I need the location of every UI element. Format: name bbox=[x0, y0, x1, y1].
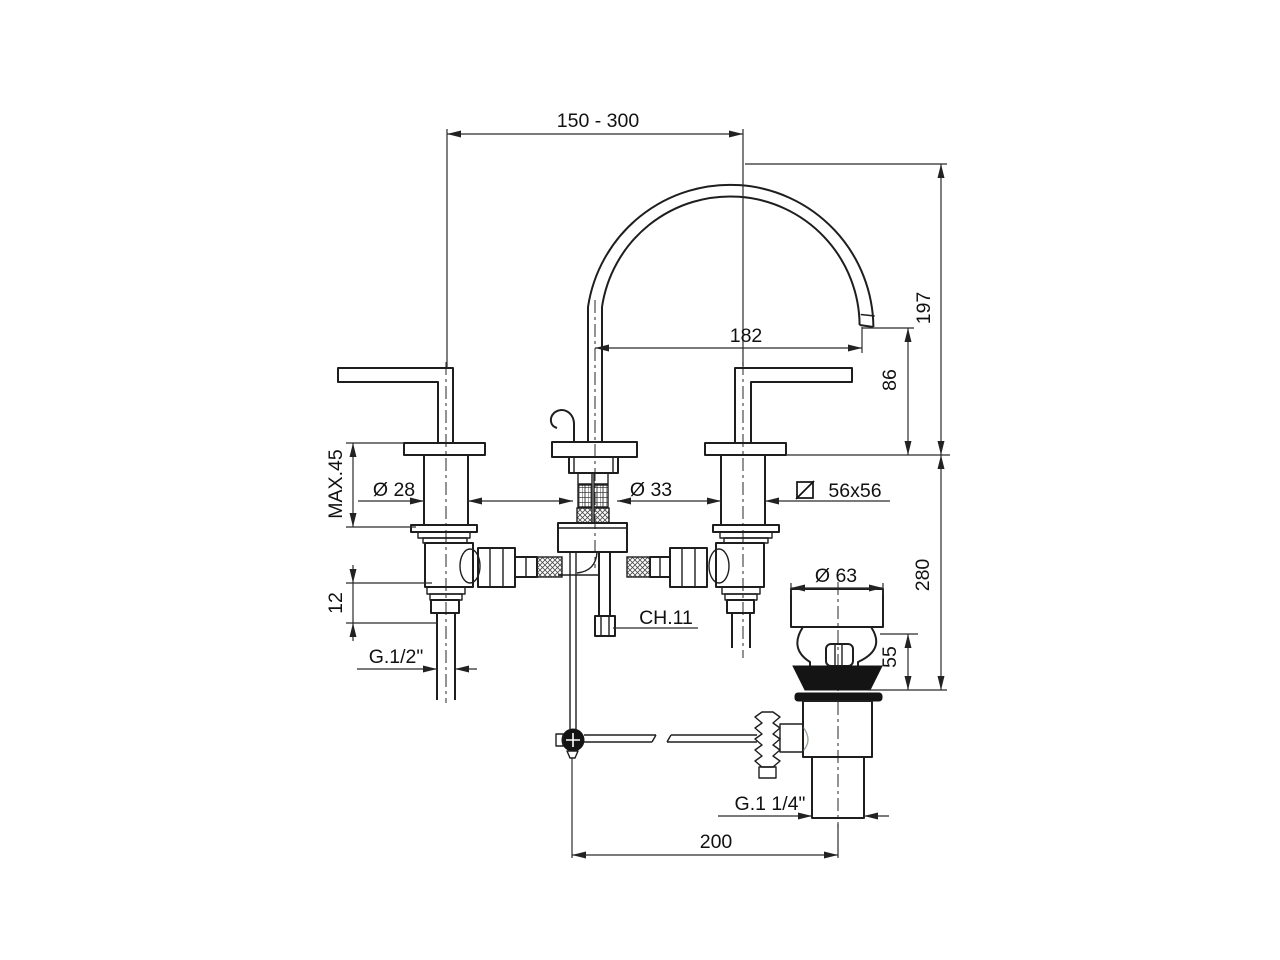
dim-outlet-height-label: 86 bbox=[879, 369, 901, 391]
dim-outlet-height: 86 bbox=[862, 328, 914, 455]
label-drain-thread: G.1 1/4" bbox=[735, 793, 806, 815]
cartridge-thread-left bbox=[578, 485, 592, 507]
left-escutcheon bbox=[404, 443, 485, 455]
left-valve-body bbox=[425, 543, 473, 587]
arrowhead bbox=[559, 498, 573, 505]
cartridge-right bbox=[594, 473, 608, 484]
right-escutcheon bbox=[705, 443, 786, 455]
arrowhead bbox=[423, 666, 437, 673]
pop-up-lift-hook bbox=[551, 410, 574, 442]
arrowhead bbox=[824, 852, 838, 859]
right-inlet-tube bbox=[732, 613, 750, 648]
center-neck-facets bbox=[574, 457, 613, 473]
arrowhead bbox=[905, 328, 912, 342]
right-base-flange bbox=[713, 525, 779, 532]
arrowhead bbox=[905, 441, 912, 455]
dim-diameters-row: Ø 28 Ø 33 56x56 bbox=[358, 479, 890, 505]
dim-inlet-offset: 12 bbox=[325, 565, 437, 641]
arrowhead bbox=[350, 623, 357, 637]
left-union-nut bbox=[478, 548, 515, 587]
label-inlet-thread: G.1/2" bbox=[369, 646, 424, 668]
spout bbox=[551, 185, 875, 442]
lift-rod-hex bbox=[595, 616, 615, 636]
right-valve-body bbox=[716, 543, 764, 587]
arrowhead bbox=[350, 513, 357, 527]
spout-tip-cap bbox=[860, 325, 874, 327]
left-union-nut-facets bbox=[490, 548, 503, 587]
drain-waist-left bbox=[797, 627, 810, 666]
arrowhead bbox=[350, 443, 357, 457]
technical-drawing: 150 - 300 182 197 86 bbox=[0, 0, 1280, 960]
dim-handle-span-label: 150 - 300 bbox=[557, 110, 640, 132]
arrowhead bbox=[468, 498, 482, 505]
dimensions: 150 - 300 182 197 86 bbox=[325, 110, 950, 859]
arrowhead bbox=[350, 569, 357, 583]
right-handle bbox=[627, 368, 852, 648]
arrowhead bbox=[938, 164, 945, 178]
horizontal-rod-a bbox=[584, 735, 656, 742]
dim-drain-diameter: Ø 63 bbox=[791, 565, 883, 595]
drain-seal-cone bbox=[793, 666, 882, 690]
arrowhead bbox=[707, 498, 721, 505]
drain-waist-right bbox=[858, 627, 876, 666]
spout-outer-arc bbox=[588, 185, 873, 327]
clamp-connector bbox=[780, 724, 803, 752]
arrowhead bbox=[455, 666, 469, 673]
dim-drain-offset: 200 bbox=[572, 824, 838, 859]
arrowhead bbox=[905, 676, 912, 690]
arrowhead bbox=[765, 498, 779, 505]
clamp-wheel-hub bbox=[759, 767, 776, 778]
right-valve-bulge bbox=[709, 549, 729, 583]
dim-handle-diameter-label: Ø 28 bbox=[373, 479, 415, 501]
cartridge-thread-right bbox=[594, 485, 608, 507]
clamp-wheel bbox=[755, 712, 780, 767]
right-tail-ring bbox=[722, 587, 760, 594]
dim-drain-offset-label: 200 bbox=[700, 831, 733, 853]
left-base-flange bbox=[411, 525, 477, 532]
label-rod-hex-text: CH.11 bbox=[639, 607, 693, 629]
arrowhead bbox=[905, 634, 912, 648]
left-supply-hose bbox=[537, 557, 562, 577]
center-thread-hatch-right bbox=[594, 508, 609, 523]
arrowhead bbox=[729, 131, 743, 138]
cartridge-left bbox=[578, 473, 592, 484]
drain-knob bbox=[826, 644, 853, 666]
dim-spout-reach-label: 182 bbox=[730, 325, 763, 347]
label-rod-hex: CH.11 bbox=[613, 607, 698, 629]
dim-inlet-offset-label: 12 bbox=[325, 592, 347, 614]
left-lever bbox=[338, 368, 453, 443]
drain-flange bbox=[791, 589, 883, 627]
dim-spout-reach: 182 bbox=[595, 325, 862, 353]
arrowhead bbox=[447, 131, 461, 138]
dim-base-square-label: 56x56 bbox=[828, 480, 881, 502]
arrowhead bbox=[938, 676, 945, 690]
arrowhead bbox=[864, 813, 878, 820]
pop-up-rod-vertical bbox=[570, 552, 576, 729]
arrowhead bbox=[869, 585, 883, 592]
drain-assembly bbox=[755, 589, 883, 818]
dim-inlet-offset-extensions bbox=[346, 583, 437, 623]
dim-drain-height: 55 bbox=[879, 634, 918, 690]
dim-inlet-thread: G.1/2" bbox=[357, 646, 477, 673]
dim-drain-diameter-label: Ø 63 bbox=[815, 565, 857, 587]
horizontal-rod-b bbox=[667, 735, 757, 742]
dim-max-thickness-label: MAX.45 bbox=[325, 449, 347, 519]
dim-drain-height-label: 55 bbox=[879, 646, 901, 668]
drain-seal-ring bbox=[795, 693, 882, 701]
lift-rod bbox=[599, 552, 610, 616]
arrowhead bbox=[791, 585, 805, 592]
right-supply-hose bbox=[627, 557, 650, 577]
arrowhead bbox=[572, 852, 586, 859]
drawing-canvas: 150 - 300 182 197 86 bbox=[0, 0, 1280, 960]
right-union-nut bbox=[670, 548, 707, 587]
center-thread-hatch-left bbox=[577, 508, 592, 523]
pop-up-rod bbox=[556, 552, 757, 858]
lift-rod-hex-facets bbox=[601, 616, 609, 636]
right-union-nut-facets bbox=[682, 548, 695, 587]
arrowhead bbox=[848, 345, 862, 352]
pivot-foot bbox=[567, 751, 578, 758]
center-neck bbox=[569, 457, 618, 473]
dim-below-deck-depth-label: 280 bbox=[912, 559, 934, 592]
arrowhead bbox=[938, 441, 945, 455]
right-tailpiece bbox=[727, 600, 754, 613]
dim-spout-diameter-label: Ø 33 bbox=[630, 479, 672, 501]
dim-spout-height-label: 197 bbox=[913, 292, 935, 325]
left-tailpiece bbox=[431, 600, 459, 613]
right-lever bbox=[735, 368, 852, 443]
rod-guide bbox=[558, 552, 598, 575]
arrowhead bbox=[938, 455, 945, 469]
square-section-icon bbox=[796, 481, 814, 499]
